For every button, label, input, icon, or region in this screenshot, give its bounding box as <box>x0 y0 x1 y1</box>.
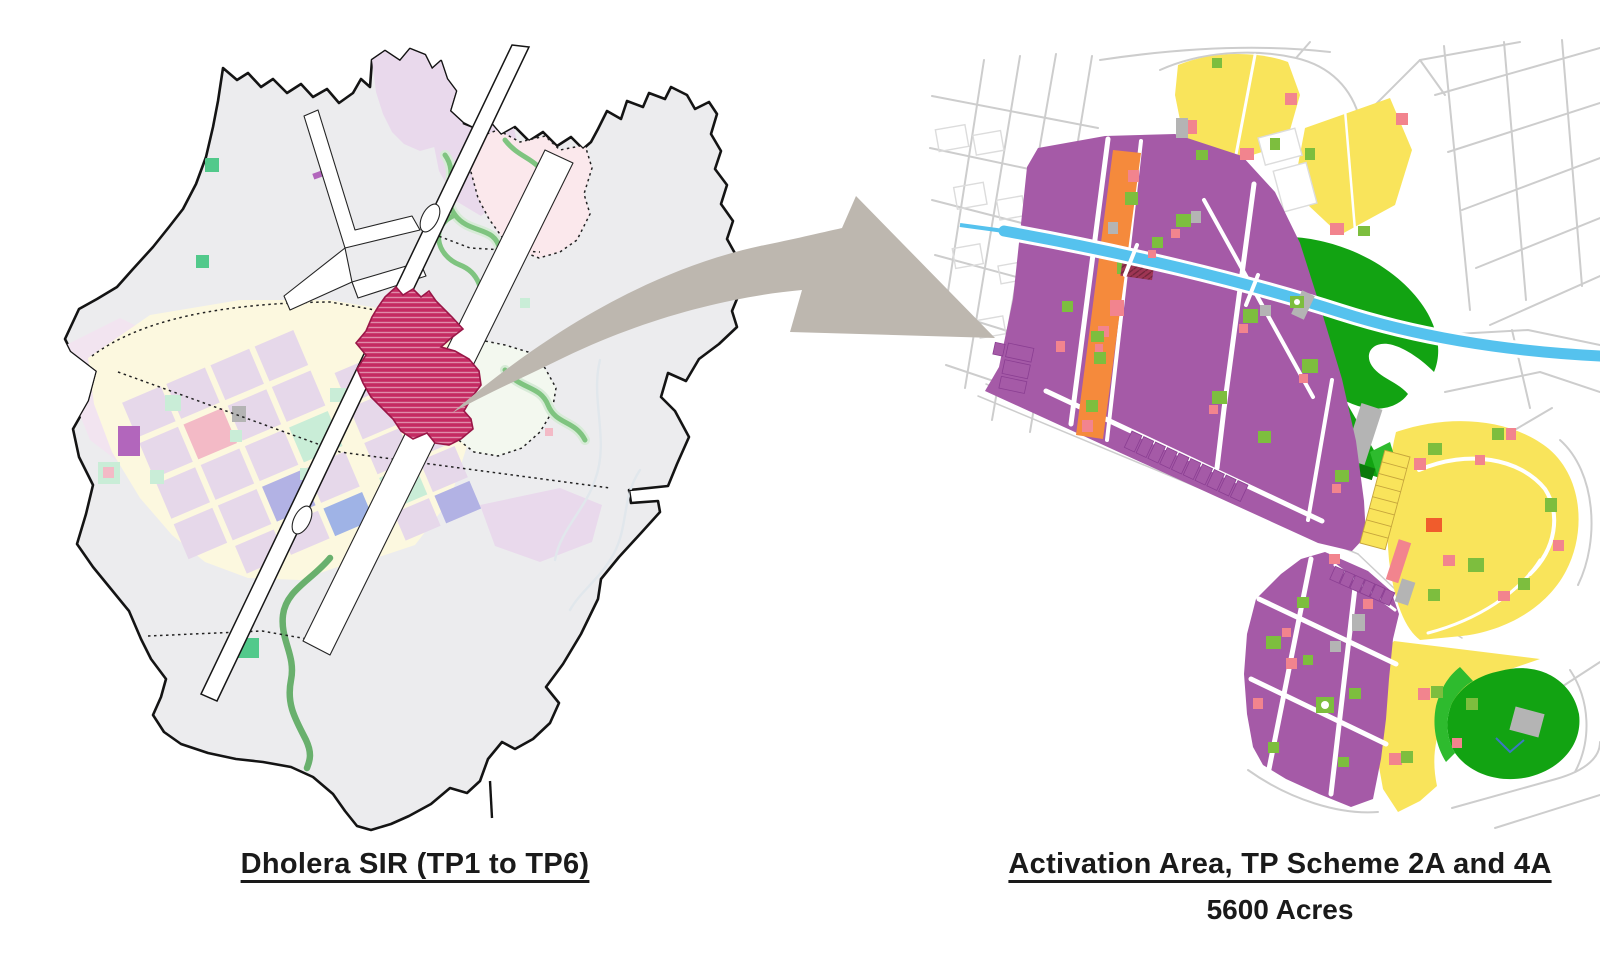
slide-canvas: Dholera SIR (TP1 to TP6) Activation Area… <box>0 0 1600 972</box>
activation-area-map <box>930 40 1600 828</box>
sir-south-road-stub <box>490 781 492 818</box>
aa-yellow-east <box>1387 421 1579 640</box>
right-map-caption: Activation Area, TP Scheme 2A and 4A <box>960 848 1600 881</box>
maps-graphic <box>0 0 1600 972</box>
right-map-area-label: 5600 Acres <box>960 894 1600 926</box>
aa-purple-south-grid <box>1244 552 1399 807</box>
aa-red-orange-block <box>1426 518 1442 532</box>
left-map-caption: Dholera SIR (TP1 to TP6) <box>150 848 680 881</box>
dholera-sir-map <box>65 45 739 830</box>
